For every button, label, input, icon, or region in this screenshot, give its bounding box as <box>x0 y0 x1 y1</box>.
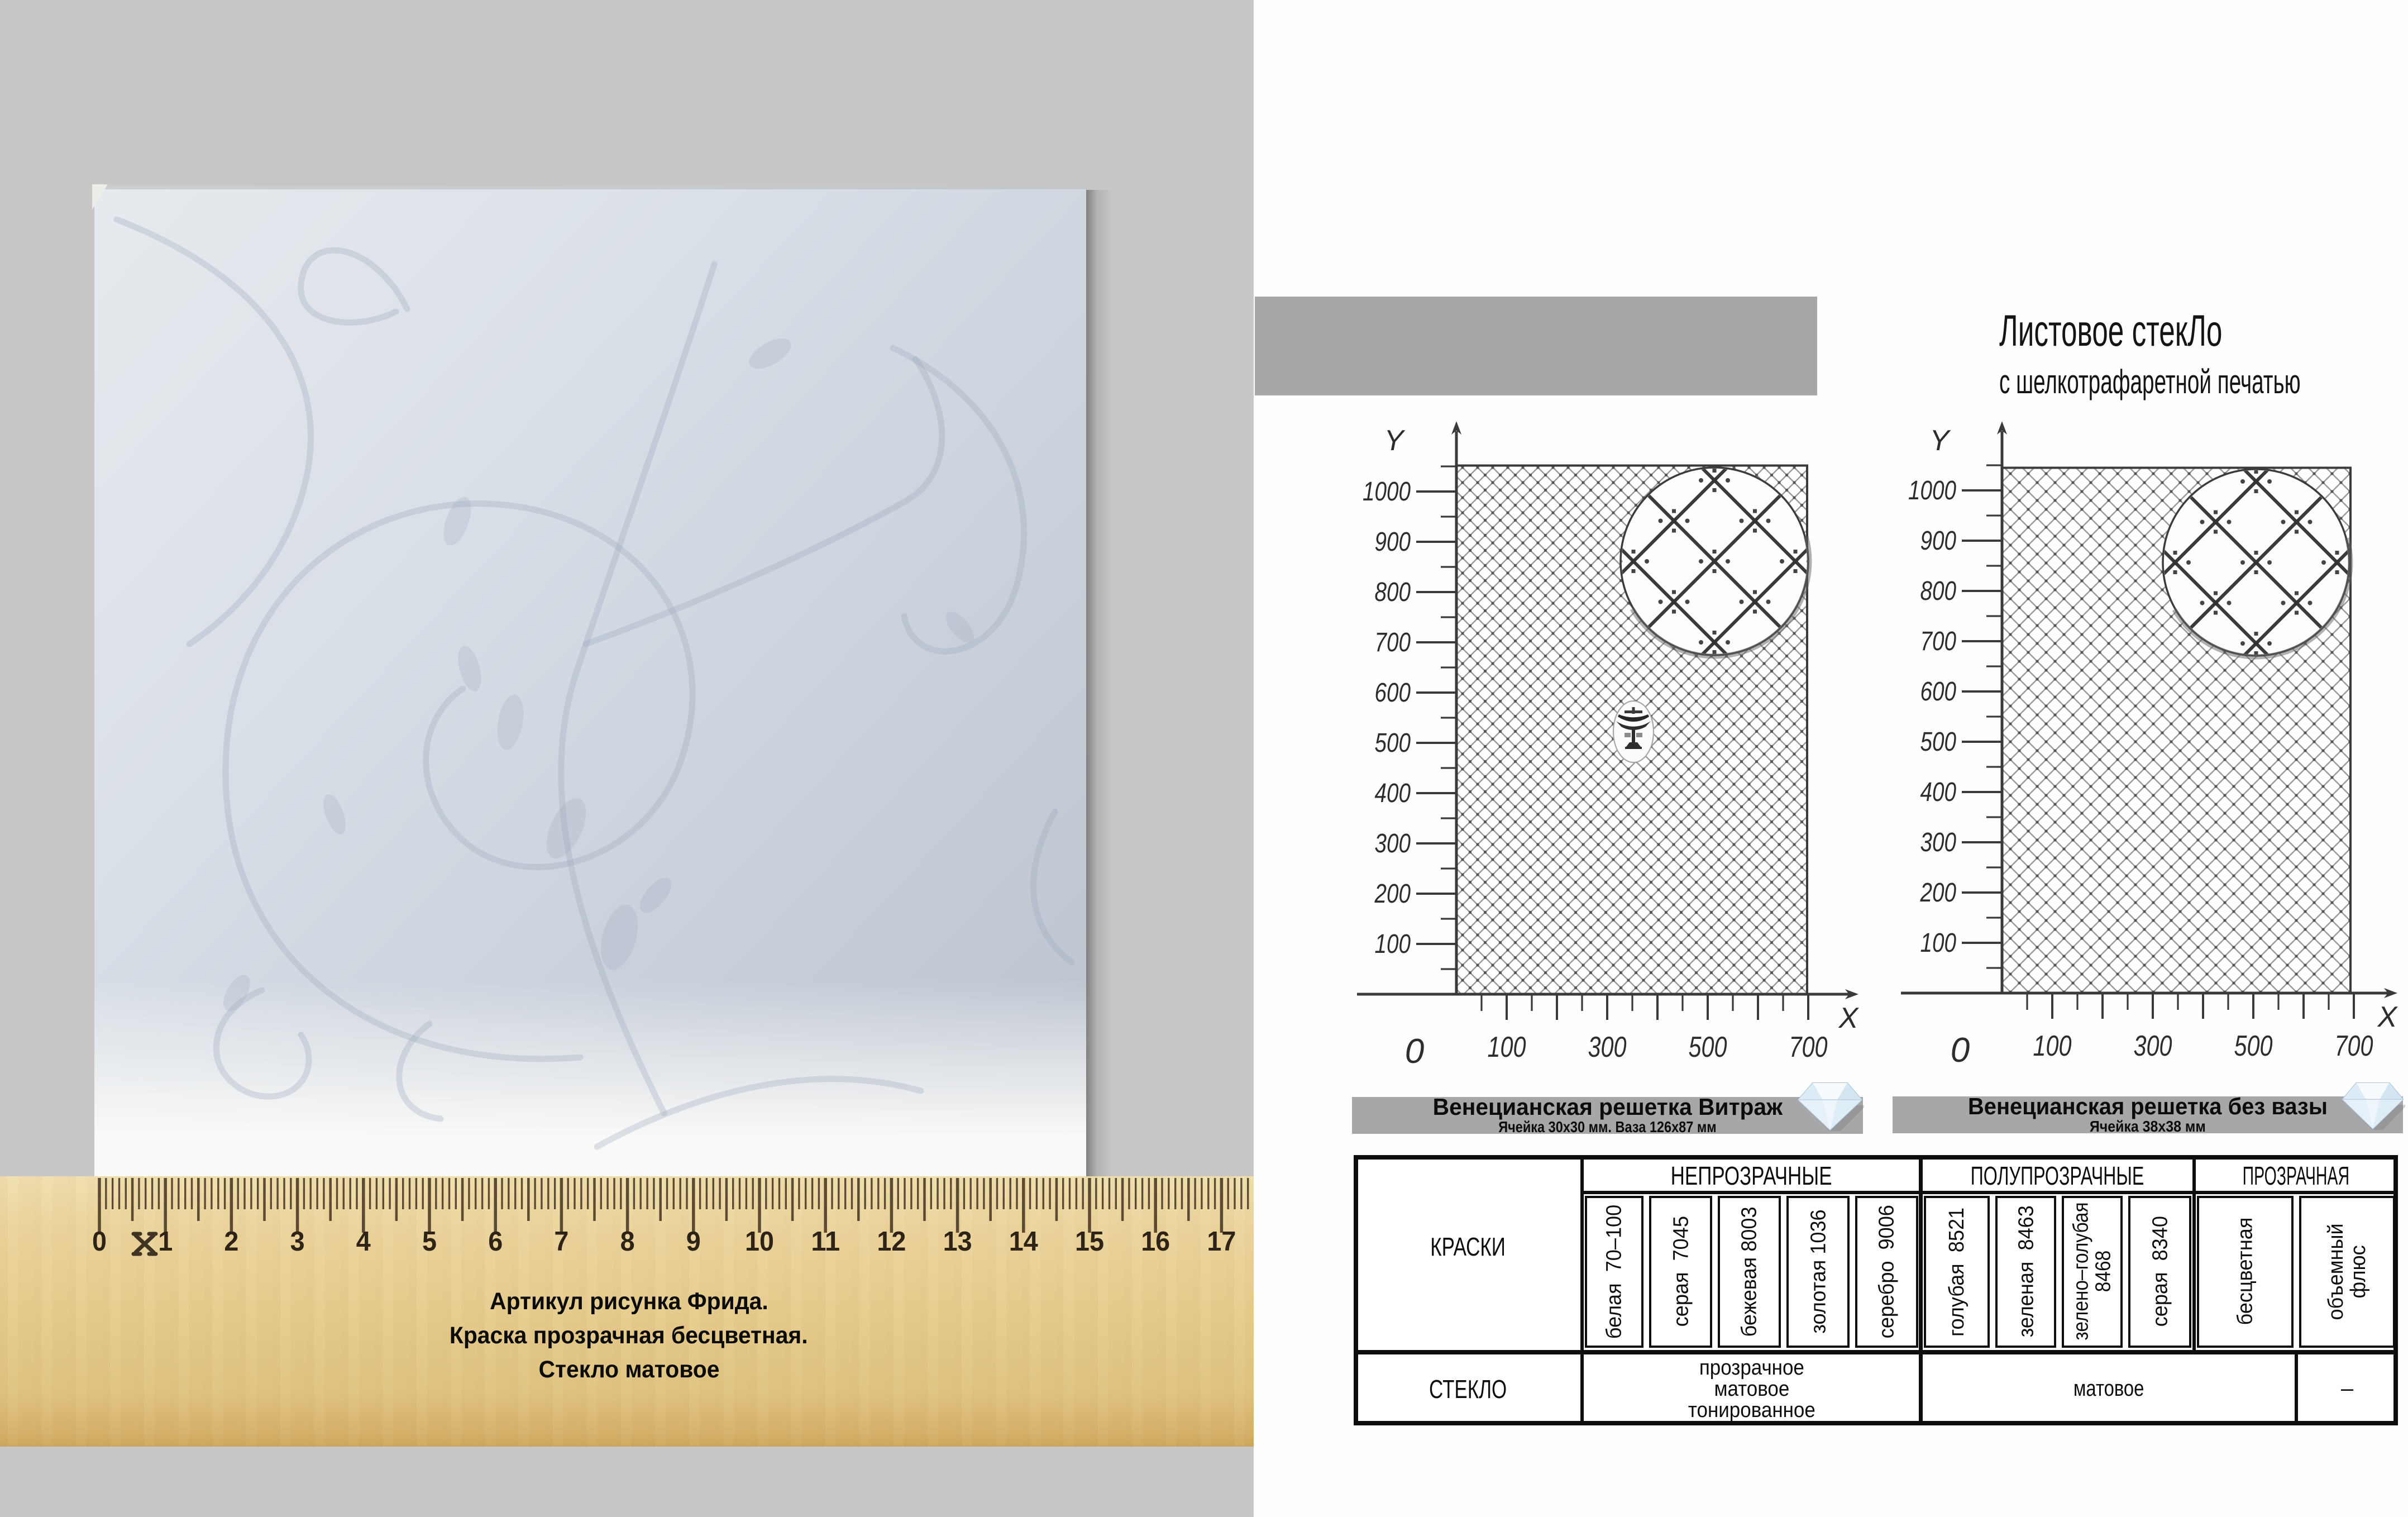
svg-text:14: 14 <box>1009 1227 1038 1257</box>
svg-text:11: 11 <box>811 1227 840 1257</box>
svg-text:7: 7 <box>554 1227 568 1257</box>
svg-text:с шелкотрафаретной печатью: с шелкотрафаретной печатью <box>1999 362 2301 400</box>
svg-text:X: X <box>2377 1001 2399 1033</box>
svg-text:100: 100 <box>1488 1031 1526 1063</box>
svg-text:600: 600 <box>1920 677 1957 707</box>
svg-text:400: 400 <box>1375 779 1411 808</box>
svg-text:3: 3 <box>290 1227 305 1257</box>
svg-text:500: 500 <box>1920 727 1957 757</box>
svg-text:500: 500 <box>2234 1030 2273 1062</box>
svg-text:200: 200 <box>1374 879 1411 909</box>
svg-text:500: 500 <box>1375 728 1411 758</box>
svg-text:4: 4 <box>356 1227 371 1257</box>
svg-text:100: 100 <box>1375 929 1411 959</box>
svg-text:200: 200 <box>1920 878 1957 908</box>
svg-text:0: 0 <box>92 1227 107 1257</box>
svg-text:1000: 1000 <box>1908 476 1956 505</box>
svg-text:13: 13 <box>943 1227 972 1257</box>
svg-text:900: 900 <box>1920 526 1957 556</box>
svg-text:300: 300 <box>1920 828 1957 857</box>
svg-text:400: 400 <box>1920 777 1957 807</box>
svg-text:12: 12 <box>877 1227 906 1257</box>
svg-text:5: 5 <box>422 1227 437 1257</box>
svg-text:9: 9 <box>686 1227 701 1257</box>
svg-text:Листовое стекЛо: Листовое стекЛо <box>1999 307 2222 356</box>
svg-text:Y: Y <box>1384 424 1406 457</box>
svg-text:300: 300 <box>1375 829 1411 858</box>
svg-text:300: 300 <box>1588 1031 1627 1063</box>
svg-text:100: 100 <box>1920 928 1957 958</box>
svg-text:900: 900 <box>1375 527 1411 557</box>
svg-text:6: 6 <box>488 1227 503 1257</box>
svg-text:1000: 1000 <box>1363 477 1411 507</box>
svg-text:0: 0 <box>1951 1031 1970 1070</box>
svg-text:2: 2 <box>224 1227 238 1257</box>
svg-text:10: 10 <box>745 1227 774 1257</box>
svg-text:700: 700 <box>1920 627 1957 656</box>
svg-text:700: 700 <box>2335 1030 2373 1062</box>
svg-text:15: 15 <box>1075 1227 1104 1257</box>
svg-text:600: 600 <box>1375 678 1411 708</box>
svg-text:800: 800 <box>1375 578 1411 607</box>
svg-text:100: 100 <box>2033 1030 2072 1062</box>
svg-text:800: 800 <box>1920 576 1957 606</box>
svg-text:1: 1 <box>158 1227 173 1257</box>
svg-text:Y: Y <box>1930 424 1951 457</box>
svg-text:X: X <box>1838 1002 1860 1034</box>
svg-text:0: 0 <box>1405 1032 1424 1071</box>
svg-text:300: 300 <box>2134 1030 2172 1062</box>
svg-text:700: 700 <box>1375 628 1411 657</box>
svg-text:700: 700 <box>1789 1031 1828 1063</box>
svg-text:17: 17 <box>1207 1227 1236 1257</box>
svg-text:500: 500 <box>1689 1031 1727 1063</box>
svg-text:16: 16 <box>1141 1227 1170 1257</box>
svg-text:8: 8 <box>620 1227 635 1257</box>
